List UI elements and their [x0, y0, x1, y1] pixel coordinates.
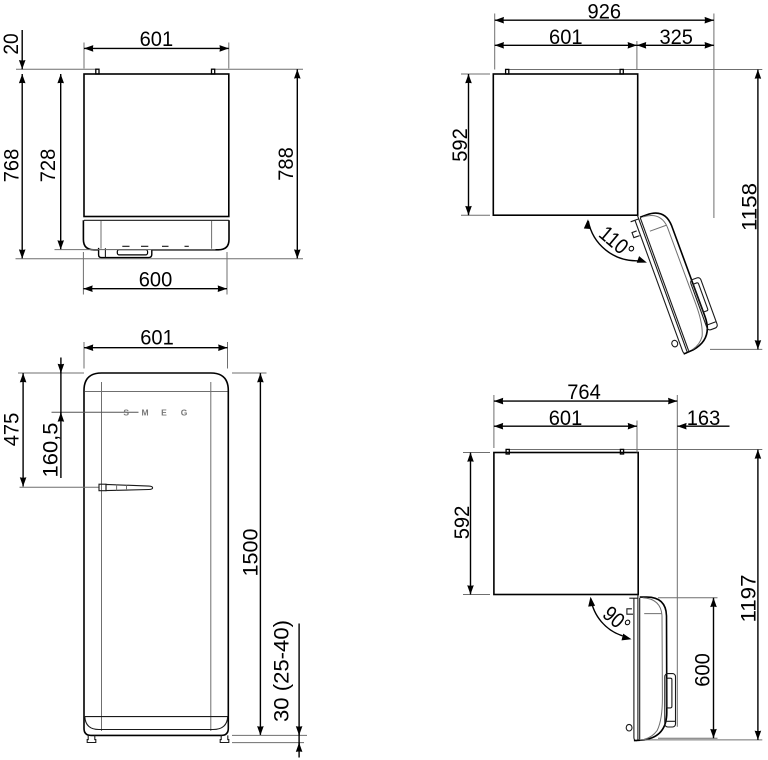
svg-text:475: 475 [0, 413, 23, 447]
svg-text:600: 600 [139, 267, 173, 291]
svg-text:1158: 1158 [738, 183, 762, 231]
svg-text:926: 926 [588, 0, 622, 24]
svg-text:601: 601 [549, 406, 583, 430]
svg-text:592: 592 [450, 506, 474, 540]
svg-text:M: M [141, 407, 148, 417]
svg-text:160,5: 160,5 [39, 422, 63, 477]
svg-text:20: 20 [0, 33, 23, 54]
svg-text:1500: 1500 [238, 528, 262, 576]
svg-text:G: G [181, 407, 188, 417]
svg-text:764: 764 [567, 380, 601, 404]
svg-text:30 (25-40): 30 (25-40) [270, 620, 294, 722]
svg-text:601: 601 [549, 25, 583, 49]
svg-text:163: 163 [687, 406, 721, 430]
svg-text:110°: 110° [594, 221, 639, 264]
svg-text:90°: 90° [598, 601, 635, 637]
svg-text:E: E [161, 407, 167, 417]
svg-text:601: 601 [140, 325, 174, 349]
svg-text:592: 592 [448, 128, 472, 162]
svg-text:768: 768 [0, 149, 23, 183]
svg-text:325: 325 [659, 25, 693, 49]
svg-text:601: 601 [140, 27, 174, 51]
svg-text:788: 788 [274, 147, 298, 181]
svg-text:600: 600 [691, 653, 715, 687]
svg-text:728: 728 [36, 149, 60, 183]
svg-text:S: S [123, 407, 129, 417]
svg-text:1197: 1197 [737, 575, 761, 623]
